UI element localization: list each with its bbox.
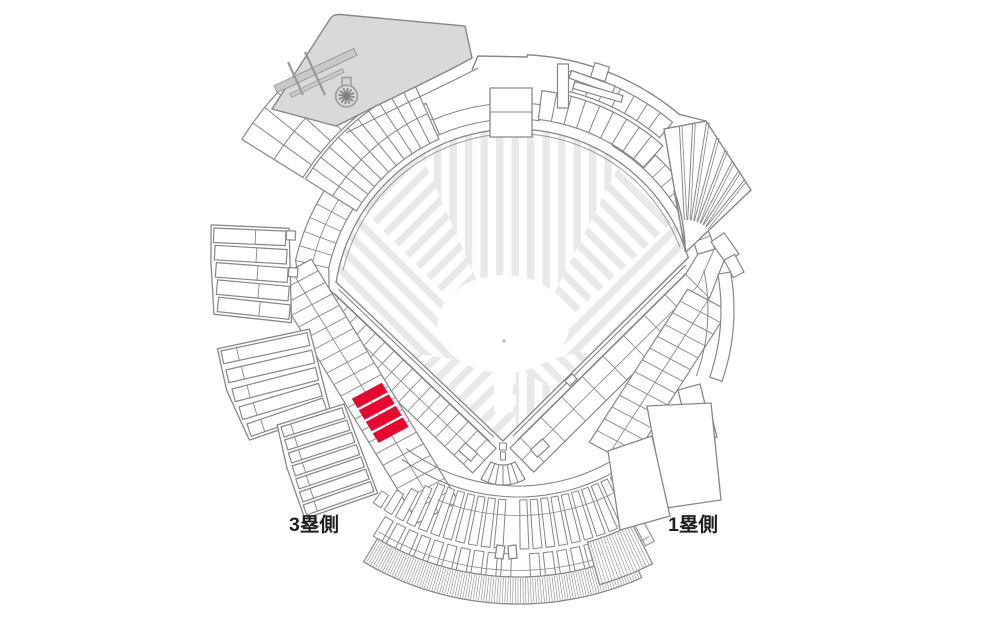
svg-text:3塁側: 3塁側 (289, 514, 339, 536)
svg-text:1塁側: 1塁側 (668, 514, 718, 536)
